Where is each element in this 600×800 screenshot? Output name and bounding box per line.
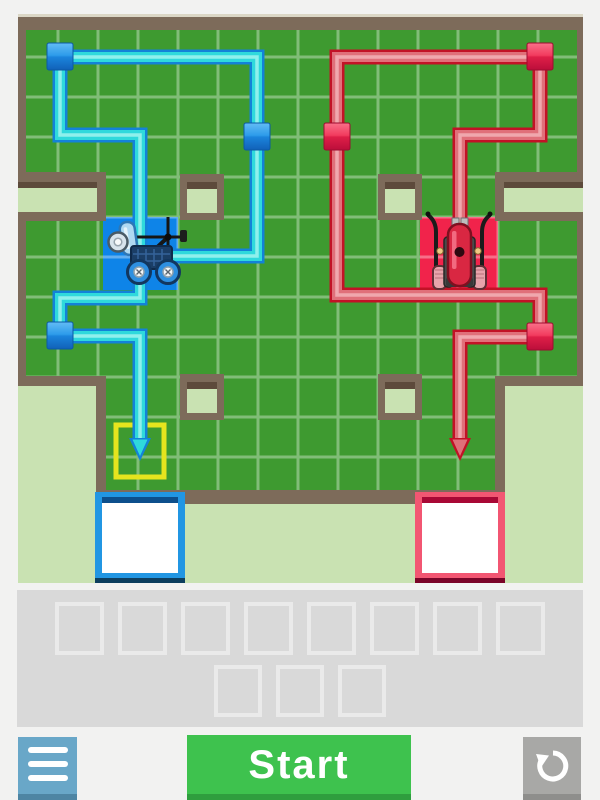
blue-finish-box (95, 492, 185, 583)
blue-waypoint-cube (47, 43, 73, 70)
program-slot[interactable] (181, 602, 230, 655)
red-robot[interactable] (426, 212, 493, 290)
wall-top-highlight (18, 14, 583, 17)
red-waypoint-cube (324, 123, 350, 150)
reset-undo-icon (534, 748, 570, 784)
program-slot[interactable] (55, 602, 104, 655)
program-slot-row-main (55, 602, 545, 655)
program-slot[interactable] (276, 665, 324, 717)
blue-waypoint-cube (244, 123, 270, 150)
obstacle-block (180, 374, 224, 420)
program-slot[interactable] (118, 602, 167, 655)
program-slot[interactable] (244, 602, 293, 655)
program-slot[interactable] (370, 602, 419, 655)
obstacle-block (378, 374, 422, 420)
program-slot[interactable] (307, 602, 356, 655)
red-waypoint-cube (527, 323, 553, 350)
obstacle-block (180, 174, 224, 220)
wall-notch-left (18, 172, 106, 221)
blue-waypoint-cube (47, 322, 73, 349)
reset-button[interactable] (523, 737, 581, 800)
red-waypoint-cube (527, 43, 553, 70)
program-slot[interactable] (496, 602, 545, 655)
red-finish-box (415, 492, 505, 583)
game-screen: Start (0, 0, 600, 800)
program-panel (17, 590, 583, 727)
start-button[interactable]: Start (187, 735, 411, 800)
program-slot[interactable] (214, 665, 262, 717)
program-slot[interactable] (338, 665, 386, 717)
menu-button[interactable] (18, 737, 77, 800)
playfield (0, 0, 600, 590)
program-slot[interactable] (433, 602, 482, 655)
obstacle-block (378, 174, 422, 220)
program-slot-row-sub (17, 665, 583, 717)
wall-notch-right (495, 172, 583, 221)
